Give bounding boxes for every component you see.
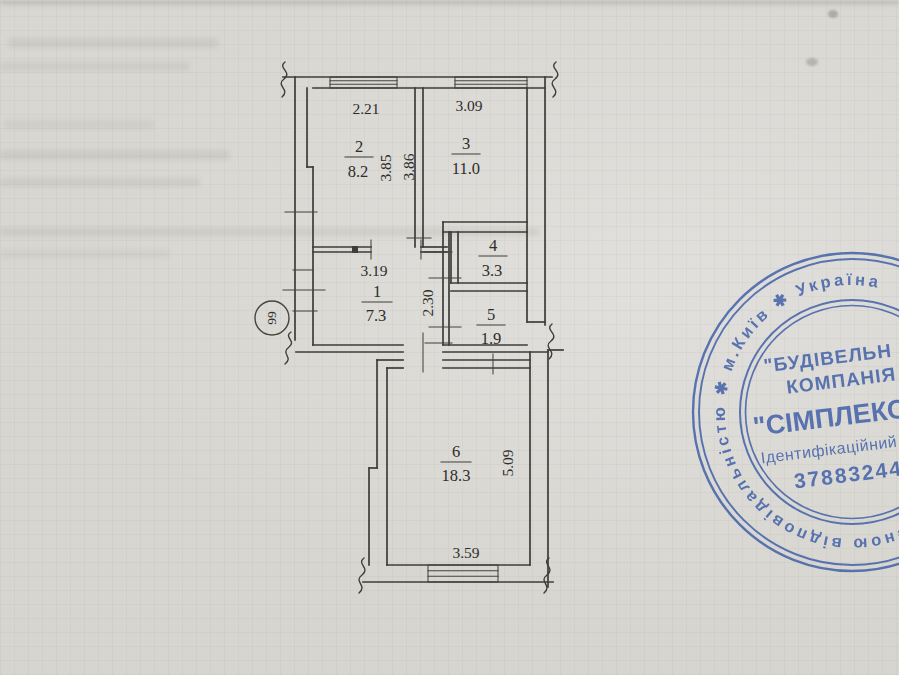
dim-room3-width: 3.09: [455, 97, 482, 114]
wall-break-mark: [548, 324, 554, 359]
svg-text:18.3: 18.3: [442, 466, 471, 485]
room-4-label: 4 3.3: [479, 236, 507, 280]
stamp-center-text: "БУДІВЕЛЬН КОМПАНІЯ "СІМПЛЕКС-С Ідентифі…: [745, 335, 899, 496]
dim-room1-depth: 2.30: [419, 289, 436, 316]
floor-plan-drawing: 2.21 3.09 3.85 3.86 3.19 2.30 5.09 3.59 …: [0, 0, 899, 675]
svg-text:4: 4: [489, 236, 497, 255]
room-6-label: 6 18.3: [441, 442, 471, 485]
svg-text:8.2: 8.2: [348, 162, 369, 181]
svg-text:7.3: 7.3: [366, 306, 387, 325]
room-3-label: 3 11.0: [452, 134, 480, 178]
dim-room6-width: 3.59: [452, 544, 479, 561]
wall-break-mark: [359, 558, 365, 593]
svg-text:2: 2: [355, 137, 363, 156]
room-2-label: 2 8.2: [345, 137, 373, 181]
dim-room6-depth: 5.09: [499, 449, 516, 476]
window-room-6: [428, 565, 498, 582]
sheet-mark-number: 99: [264, 311, 279, 325]
wall-break-mark: [544, 558, 550, 593]
svg-text:3: 3: [462, 134, 470, 153]
dim-room2-depth: 3.85: [377, 154, 394, 181]
window-room-3: [455, 77, 527, 88]
wall-break-mark: [281, 62, 287, 97]
room-5-label: 5 1.9: [477, 305, 505, 348]
svg-text:3.3: 3.3: [482, 261, 503, 280]
stamp-id-number: 37883244: [793, 456, 899, 492]
svg-text:6: 6: [452, 442, 460, 461]
svg-text:1: 1: [373, 282, 381, 301]
company-stamp: женою відповідальністю ✱ м.Київ ✱ Україн…: [693, 253, 899, 571]
svg-text:1.9: 1.9: [481, 329, 502, 348]
dim-room3-depth: 3.86: [400, 153, 417, 180]
svg-text:11.0: 11.0: [452, 159, 480, 178]
wall-break-mark: [285, 332, 292, 364]
room-1-label: 1 7.3: [362, 282, 392, 325]
sheet-mark-circle: 99: [255, 301, 289, 335]
scanned-floor-plan-page: 2.21 3.09 3.85 3.86 3.19 2.30 5.09 3.59 …: [0, 0, 899, 675]
svg-text:5: 5: [487, 305, 495, 324]
wall-tick: [352, 246, 358, 253]
wall-break-mark: [552, 62, 558, 97]
dim-room2-width: 2.21: [352, 100, 379, 117]
dim-room1-width: 3.19: [360, 262, 387, 279]
window-room-2: [330, 77, 397, 88]
floor-plan-walls: [281, 62, 563, 593]
